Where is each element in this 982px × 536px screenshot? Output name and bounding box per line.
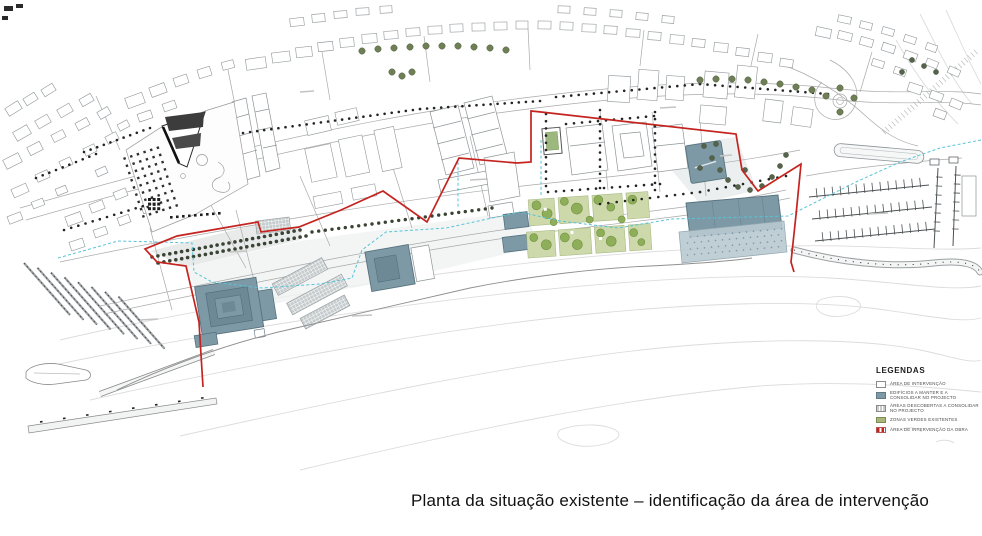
legend-swatch-solid — [876, 392, 886, 399]
legend-item: Edifícios a manter e a consolidar no pro… — [876, 391, 980, 400]
legend-swatch-green — [876, 417, 886, 424]
marina-east — [794, 143, 980, 272]
legend-swatch-plain — [876, 381, 886, 388]
legend-item-label: Zonas verdes existentes — [890, 418, 958, 423]
legend-item: Área de intervenção da obra — [876, 427, 980, 434]
legend-item-label: Área de intervenção da obra — [890, 428, 968, 433]
legend-swatch-grid — [876, 405, 886, 412]
legend-item: Zonas verdes existentes — [876, 417, 980, 424]
legend-item: Áreas descobertas a consolidar no projec… — [876, 404, 980, 413]
legend-items: Área de intervençãoEdifícios a manter e … — [876, 381, 980, 433]
plan-sheet: LEGENDAS Área de intervençãoEdifícios a … — [0, 0, 982, 536]
marina-west — [24, 263, 217, 433]
legend-item-label: Áreas descobertas a consolidar no projec… — [890, 404, 980, 413]
public-garden — [524, 192, 652, 259]
legend-title: LEGENDAS — [876, 366, 980, 375]
site-plan-drawing — [0, 0, 982, 536]
legend-swatch-red-dash — [876, 427, 886, 434]
plan-caption: Planta da situação existente – identific… — [400, 491, 940, 511]
legend-item: Área de intervenção — [876, 381, 980, 388]
legend-item-label: Edifícios a manter e a consolidar no pro… — [890, 391, 980, 400]
legend-item-label: Área de intervenção — [890, 382, 946, 387]
legend: LEGENDAS Área de intervençãoEdifícios a … — [876, 366, 980, 437]
